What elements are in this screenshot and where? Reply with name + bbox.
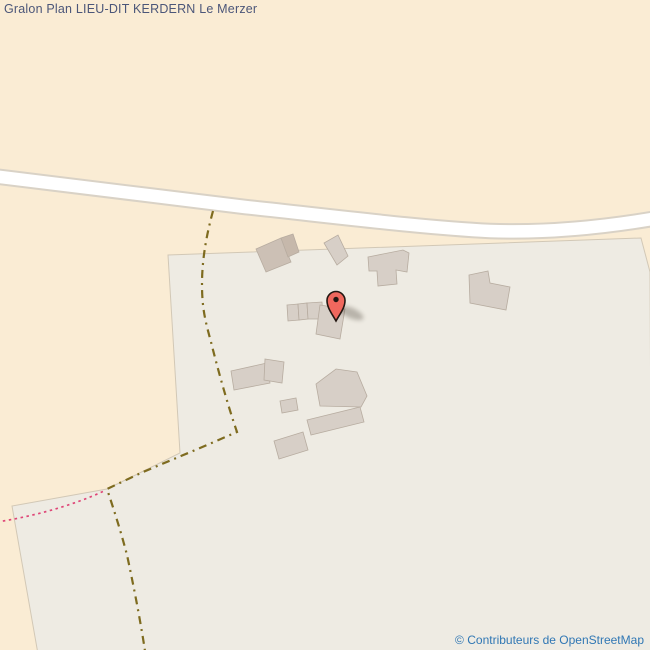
- page-title: Gralon Plan LIEU-DIT KERDERN Le Merzer: [4, 1, 257, 17]
- marker-pin-dot: [333, 297, 338, 302]
- osm-attribution-link[interactable]: © Contributeurs de OpenStreetMap: [455, 633, 644, 648]
- building: [280, 398, 298, 413]
- building: [298, 303, 308, 320]
- map-canvas[interactable]: Gralon Plan LIEU-DIT KERDERN Le Merzer ©…: [0, 0, 650, 650]
- map-tiles: [0, 0, 650, 650]
- building: [287, 304, 299, 321]
- building: [264, 359, 284, 383]
